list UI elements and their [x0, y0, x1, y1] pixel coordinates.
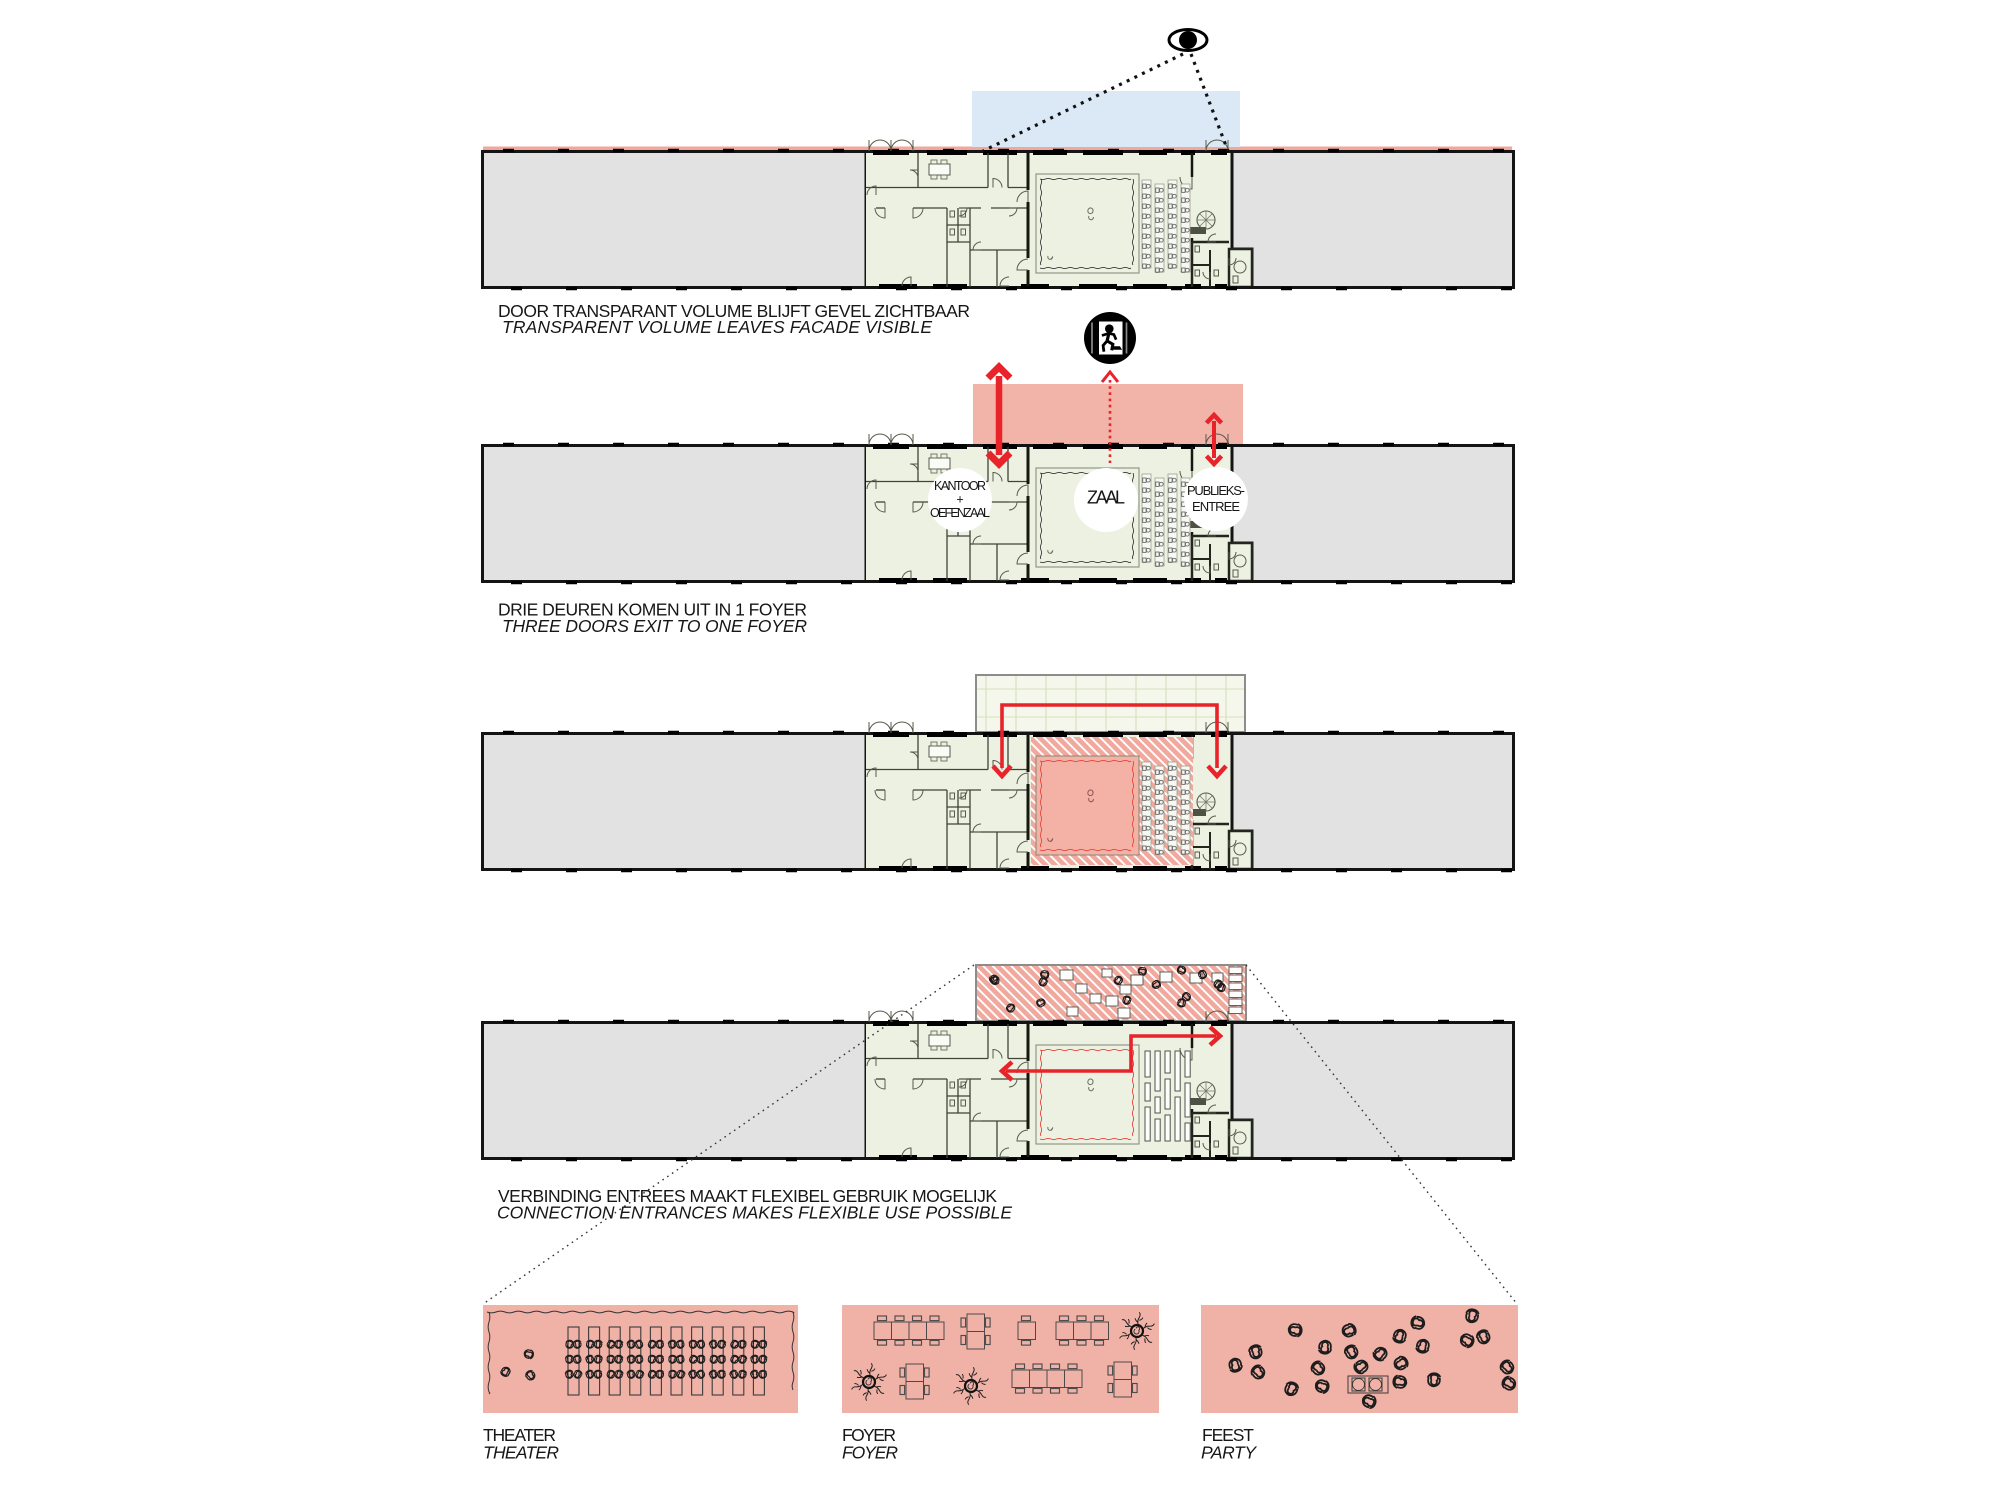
svg-text:THREE DOORS EXIT TO ONE FOYER: THREE DOORS EXIT TO ONE FOYER	[502, 616, 807, 636]
svg-text:FOYER: FOYER	[842, 1443, 898, 1463]
svg-text:ZAAL: ZAAL	[1087, 488, 1125, 508]
svg-text:KANTOOR: KANTOOR	[934, 479, 986, 493]
svg-text:TRANSPARENT VOLUME LEAVES FACA: TRANSPARENT VOLUME LEAVES FACADE VISIBLE	[502, 317, 932, 337]
svg-text:ENTREE: ENTREE	[1192, 499, 1240, 514]
svg-text:PARTY: PARTY	[1201, 1443, 1257, 1463]
svg-text:PUBLIEKS-: PUBLIEKS-	[1187, 483, 1245, 498]
svg-text:CONNECTION ENTRANCES MAKES FLE: CONNECTION ENTRANCES MAKES FLEXIBLE USE …	[497, 1203, 1012, 1223]
svg-text:+: +	[956, 493, 963, 507]
svg-text:THEATER: THEATER	[483, 1443, 559, 1463]
svg-text:OEFENZAAL: OEFENZAAL	[930, 506, 990, 520]
